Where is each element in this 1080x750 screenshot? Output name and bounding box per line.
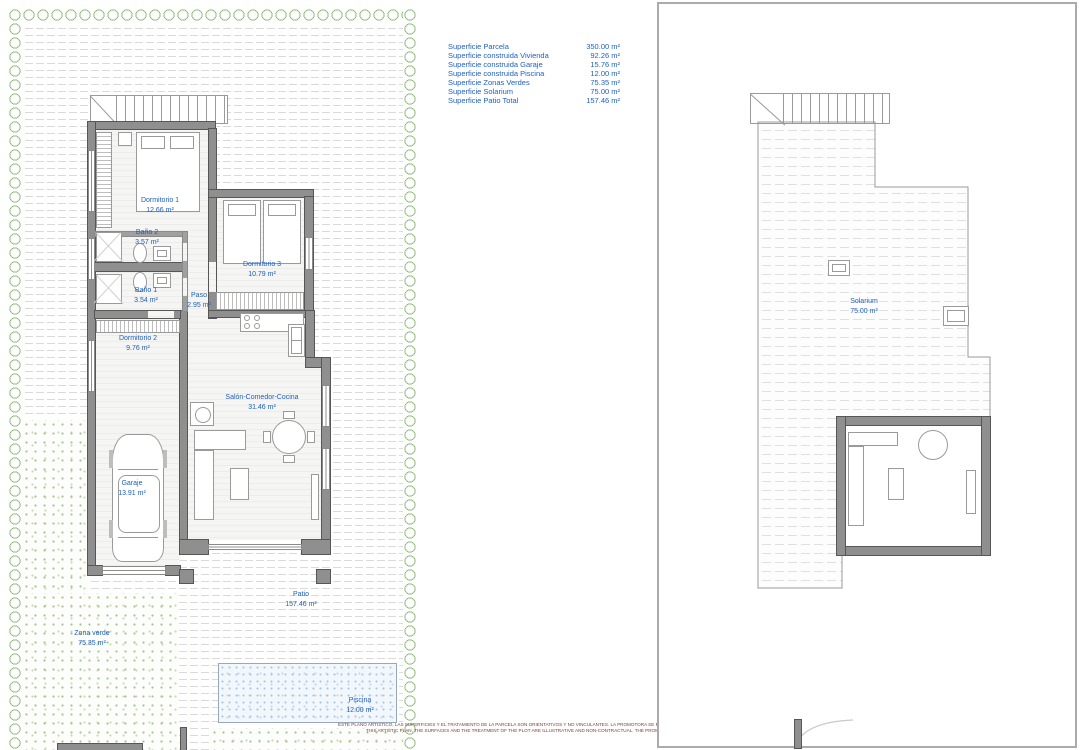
porch-pillar-left: [180, 570, 193, 583]
room-label-piscina: Piscina12.00 m²: [320, 696, 400, 716]
pillow-icon: [170, 136, 194, 149]
wardrobe-icon: [96, 132, 112, 228]
floor-plan-sheet: Dormitorio 112.66 m² Baño 23.57 m² Dormi…: [0, 0, 1080, 750]
wall: [837, 417, 845, 555]
sofa-icon: [194, 450, 214, 520]
garage-door: [102, 566, 166, 575]
room-label-patio: Patio157.46 m²: [261, 590, 341, 610]
window: [305, 237, 313, 270]
counter-icon: [848, 432, 898, 446]
skylight-icon: [828, 260, 850, 276]
garage-jamb-right: [166, 566, 180, 575]
stairs-icon: [90, 95, 117, 124]
room-label-garaje: Garaje13.91 m²: [92, 479, 172, 499]
chair-icon: [283, 455, 295, 463]
dining-table-icon: [272, 420, 306, 454]
table-row: Superficie construida Vivienda92.26 m²: [448, 51, 620, 60]
window: [88, 150, 95, 212]
pillow-icon: [268, 204, 296, 216]
wheel-icon: [109, 520, 113, 538]
wall: [95, 263, 183, 271]
wall-salon-corner-left: [180, 540, 208, 554]
wheel-icon: [163, 450, 167, 468]
green-zone-main: [22, 593, 178, 750]
hedge-top: [8, 8, 418, 23]
pillow-icon: [228, 204, 256, 216]
table-row: Superficie Parcela350.00 m²: [448, 42, 620, 51]
surface-table: Superficie Parcela350.00 m² Superficie c…: [448, 42, 620, 105]
sofa-icon: [194, 430, 246, 450]
gate-post: [181, 728, 186, 750]
table-row: Superficie construida Garaje15.76 m²: [448, 60, 620, 69]
stove-icon: [244, 315, 268, 330]
room-label-zona-verde: Zona verde75.35 m²: [52, 629, 132, 649]
solarium-outline: [657, 2, 1077, 748]
porch-pillar-right: [317, 570, 330, 583]
wall-salon-corner-right: [302, 540, 330, 554]
table-row: Superficie construida Piscina12.00 m²: [448, 69, 620, 78]
wall: [837, 547, 990, 555]
wall: [88, 122, 215, 129]
chair-icon: [263, 431, 271, 443]
room-label-dormitorio3: Dormitorio 310.79 m²: [222, 260, 302, 280]
hedge-left: [8, 8, 23, 750]
room-label-salon: Salón-Comedor-Cocina31.46 m²: [182, 393, 342, 413]
table-icon: [888, 468, 904, 500]
boundary-wall-bottom: [58, 744, 142, 750]
kitchen-sink-icon: [288, 324, 305, 357]
room-label-paso: Paso2.95 m²: [169, 291, 229, 311]
wall-stub: [795, 720, 801, 748]
room-label-solarium: Solarium75.00 m²: [824, 297, 904, 317]
stairs-steps: [116, 95, 228, 124]
window: [88, 340, 95, 392]
room-label-bano2: Baño 23.57 m²: [107, 228, 187, 248]
wardrobe-icon: [96, 320, 180, 333]
wheel-icon: [109, 450, 113, 468]
door-gap-bedroom3: [209, 262, 216, 292]
bench-icon: [966, 470, 976, 514]
table-icon: [918, 430, 948, 460]
garage-jamb-left: [88, 566, 102, 575]
window: [322, 448, 330, 490]
wall: [209, 190, 313, 197]
glass-door-salon: [208, 544, 302, 550]
wall: [180, 311, 187, 554]
chair-icon: [307, 431, 315, 443]
nightstand-icon: [118, 132, 132, 146]
door-gap-bedroom2: [148, 311, 174, 318]
wall: [306, 311, 314, 361]
wall: [837, 417, 990, 425]
table-row: Superficie Zonas Verdes75.35 m²: [448, 78, 620, 87]
table-row: Superficie Patio Total157.46 m²: [448, 96, 620, 105]
coffee-table-icon: [230, 468, 249, 500]
room-label-dormitorio2: Dormitorio 29.76 m²: [98, 334, 178, 354]
skylight-icon: [943, 306, 969, 326]
pillow-icon: [141, 136, 165, 149]
counter-icon: [848, 446, 864, 526]
washbasin-icon: [153, 246, 171, 261]
wheel-icon: [163, 520, 167, 538]
wardrobe-icon: [216, 292, 304, 310]
hedge-right: [403, 8, 418, 750]
wall: [982, 417, 990, 555]
room-label-dormitorio1: Dormitorio 112.66 m²: [120, 196, 200, 216]
tv-bench-icon: [311, 474, 319, 520]
table-row: Superficie Solarium75.00 m²: [448, 87, 620, 96]
